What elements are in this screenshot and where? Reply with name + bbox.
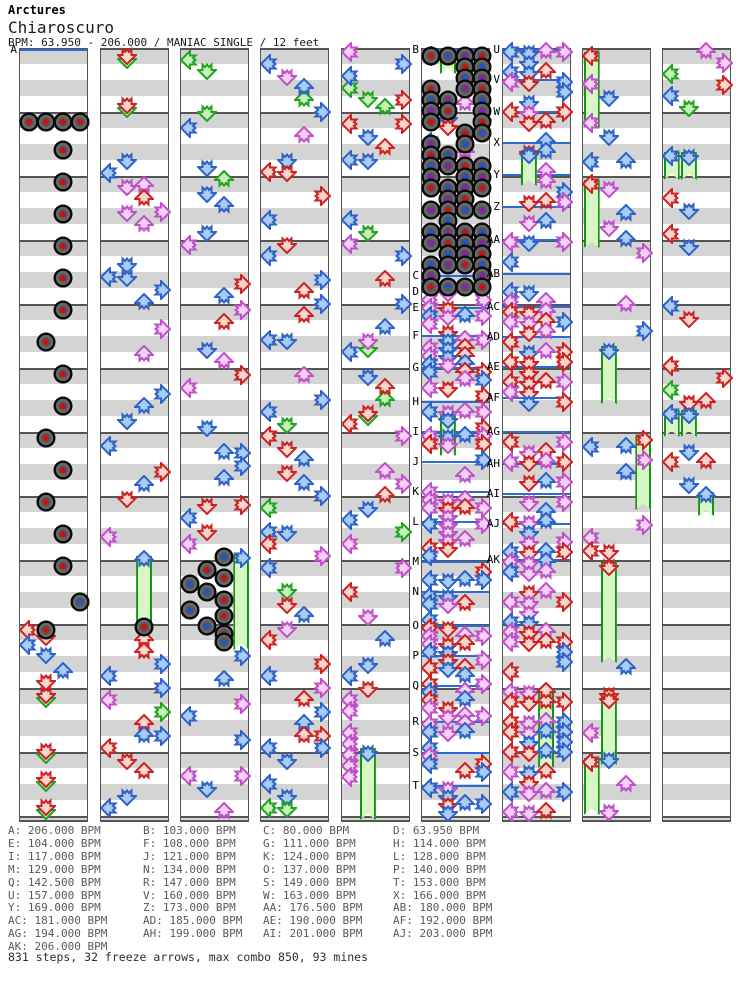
bpm-marker-label: B [403,44,419,56]
chart-column-2 [100,48,169,822]
note-arrow-right [151,202,171,222]
bpm-marker-label: AF [484,392,500,404]
bpm-entry-Y: Y: 169.000 BPM [8,902,101,914]
note-arrow-down [358,606,378,626]
bpm-marker-label: K [403,486,419,498]
bpm-entry-AC: AC: 181.000 BPM [8,915,107,927]
note-arrow-up [616,204,636,224]
note-arrow-down [679,308,699,328]
note-arrow-left [180,235,200,255]
bpm-marker-label: F [403,330,419,342]
mine-note [53,364,73,384]
mine-note [472,277,492,297]
bpm-marker-label: AB [484,268,500,280]
note-arrow-left [180,378,200,398]
note-arrow-up [375,630,395,650]
measure-line [663,816,730,818]
note-arrow-up [616,658,636,678]
note-arrow-left [341,534,361,554]
note-arrow-down [36,644,56,664]
note-arrow-up [214,802,234,822]
note-arrow-right [311,390,331,410]
bpm-marker-label: AJ [484,518,500,530]
chart-column-6 [421,48,490,822]
note-arrow-right [151,319,171,339]
note-arrow-down [599,126,619,146]
mine-note [214,568,234,588]
bpm-entry-D: D: 63.950 BPM [393,825,479,837]
note-arrow-up [294,306,314,326]
bpm-entry-I: I: 117.000 BPM [8,851,101,863]
bpm-marker-label: E [403,302,419,314]
note-arrow-up [375,270,395,290]
note-arrow-up [536,142,556,162]
mine-note [36,492,56,512]
note-arrow-right [151,654,171,674]
measure-line [663,688,730,690]
bpm-marker-label: Y [484,169,500,181]
mine-note [53,524,73,544]
bpm-marker-label: S [403,747,419,759]
note-arrow-left [100,690,120,710]
note-arrow-right [472,762,492,782]
bpm-marker-label: AE [484,361,500,373]
mine-note [472,178,492,198]
note-arrow-right [553,432,573,452]
note-arrow-down [36,671,56,691]
note-arrow-down [117,488,137,508]
measure-line [101,240,168,242]
note-arrow-down [599,689,619,709]
bpm-marker-label: D [403,286,419,298]
note-arrow-left [100,527,120,547]
note-arrow-right [151,280,171,300]
bpm-entry-Z: Z: 173.000 BPM [143,902,236,914]
note-arrow-down [197,778,217,798]
note-arrow-left [662,64,682,84]
note-arrow-down [679,236,699,256]
note-arrow-up [536,372,556,392]
note-arrow-down [679,146,699,166]
note-arrow-down [599,801,619,821]
note-arrow-up [455,722,475,742]
note-arrow-down [277,162,297,182]
note-arrow-left [341,582,361,602]
bpm-marker-label: W [484,106,500,118]
note-arrow-down [438,434,458,454]
note-arrow-right [553,392,573,412]
note-arrow-left [421,546,441,566]
note-arrow-right [633,243,653,263]
bpm-marker-label: AH [484,458,500,470]
bpm-entry-AF: AF: 192.000 BPM [393,915,492,927]
freeze-body [601,562,617,663]
note-arrow-up [536,562,556,582]
bpm-entry-AH: AH: 199.000 BPM [143,928,242,940]
note-arrow-up [536,742,556,762]
note-arrow-left [341,701,361,721]
note-arrow-down [117,267,137,287]
note-arrow-right [553,782,573,802]
mine-note [53,172,73,192]
note-arrow-down [519,562,539,582]
bpm-entry-M: M: 129.000 BPM [8,864,101,876]
note-arrow-down [679,200,699,220]
bpm-marker-label: P [403,650,419,662]
note-arrow-left [260,558,280,578]
note-arrow-up [616,463,636,483]
note-arrow-right [311,270,331,290]
note-arrow-left [260,666,280,686]
note-arrow-up [294,366,314,386]
bpm-marker-label: AC [484,301,500,313]
note-arrow-right [151,726,171,746]
note-arrow-up [455,466,475,486]
note-arrow-right [231,456,251,476]
measure-line [261,48,328,50]
note-arrow-up [294,126,314,146]
note-arrow-left [260,630,280,650]
chart-column-9 [662,48,731,822]
note-arrow-left [582,752,602,772]
note-arrow-down [117,94,137,114]
bpm-entry-AB: AB: 180.000 BPM [393,902,492,914]
note-chart: ABCDEFGHIJKLMNOPQRSTUVWXYZAAABACADAEAFAG… [0,0,752,984]
chart-column-4 [260,48,329,822]
note-arrow-up [536,212,556,232]
note-arrow-right [633,321,653,341]
note-arrow-up [134,215,154,235]
bpm-marker-label: AI [484,488,500,500]
note-arrow-up [134,397,154,417]
bpm-entry-R: R: 147.000 BPM [143,877,236,889]
note-arrow-down [599,556,619,576]
mine-note [53,140,73,160]
note-arrow-left [662,452,682,472]
note-arrow-up [294,78,314,98]
note-arrow-right [713,75,733,95]
note-arrow-down [438,802,458,822]
note-arrow-left [260,330,280,350]
note-arrow-right [311,654,331,674]
freeze-body [233,554,249,650]
note-arrow-right [553,192,573,212]
mine-note [36,620,56,640]
bpm-marker-label: O [403,620,419,632]
note-arrow-right [311,294,331,314]
note-arrow-up [536,192,556,212]
note-arrow-right [553,352,573,372]
mine-note [36,332,56,352]
mine-note [70,112,90,132]
note-arrow-down [358,742,378,762]
note-arrow-down [36,740,56,760]
note-arrow-right [553,82,573,102]
note-arrow-up [214,170,234,190]
note-arrow-right [633,450,653,470]
bpm-entry-O: O: 137.000 BPM [263,864,356,876]
note-arrow-up [696,452,716,472]
bpm-marker-label: Z [484,201,500,213]
note-arrow-left [421,378,441,398]
note-arrow-down [36,768,56,788]
mine-note [421,112,441,132]
note-arrow-up [536,682,556,702]
note-arrow-left [341,42,361,62]
note-arrow-right [553,312,573,332]
note-arrow-right [472,570,492,590]
note-arrow-left [260,498,280,518]
mine-note [70,592,90,612]
bpm-marker-label: M [403,556,419,568]
note-arrow-down [277,798,297,818]
note-arrow-left [582,174,602,194]
bpm-marker-label: T [403,780,419,792]
bpm-entry-V: V: 160.000 BPM [143,890,236,902]
note-arrow-right [553,372,573,392]
note-arrow-right [151,702,171,722]
mine-note [53,204,73,224]
bpm-entry-N: N: 134.000 BPM [143,864,236,876]
bpm-marker-label: L [403,516,419,528]
note-arrow-right [151,384,171,404]
note-arrow-right [553,102,573,122]
bpm-entry-AE: AE: 190.000 BPM [263,915,362,927]
bpm-entry-AA: AA: 176.500 BPM [263,902,362,914]
bpm-entry-C: C: 80.000 BPM [263,825,349,837]
note-arrow-right [633,515,653,535]
note-arrow-right [472,674,492,694]
bpm-entry-AJ: AJ: 203.000 BPM [393,928,492,940]
bpm-entry-W: W: 163.000 BPM [263,890,356,902]
note-arrow-left [180,534,200,554]
note-arrow-down [36,796,56,816]
measure-line [101,432,168,434]
note-arrow-left [260,246,280,266]
note-arrow-right [231,300,251,320]
bpm-entry-H: H: 114.000 BPM [393,838,486,850]
bpm-marker-label: N [403,586,419,598]
mine-note [53,300,73,320]
note-arrow-right [311,486,331,506]
measure-line [663,752,730,754]
bpm-marker-label: AK [484,554,500,566]
note-arrow-up [455,530,475,550]
note-arrow-right [231,548,251,568]
bpm-marker-label: C [403,270,419,282]
note-arrow-right [553,692,573,712]
note-arrow-up [375,378,395,398]
note-arrow-right [392,90,412,110]
note-arrow-right [151,462,171,482]
bpm-entry-K: K: 124.000 BPM [263,851,356,863]
note-arrow-left [100,436,120,456]
note-arrow-right [311,678,331,698]
bpm-entry-B: B: 103.000 BPM [143,825,236,837]
note-arrow-up [134,726,154,746]
measure-line [342,176,409,178]
note-arrow-left [502,742,522,762]
note-arrow-down [438,409,458,429]
bpm-entry-G: G: 111.000 BPM [263,838,356,850]
note-arrow-down [679,404,699,424]
bpm-marker-label: AA [484,234,500,246]
bpm-marker-label: A [1,44,17,56]
note-arrow-right [311,702,331,722]
measure-line [101,368,168,370]
note-arrow-right [311,738,331,758]
bpm-entry-X: X: 166.000 BPM [393,890,486,902]
bpm-change-line [20,49,87,51]
step-chart-page: Arctures Chiaroscuro BPM: 63.950 - 206.0… [0,0,752,984]
note-arrow-down [519,72,539,92]
note-arrow-up [616,295,636,315]
note-arrow-up [536,802,556,822]
note-arrow-right [231,766,251,786]
note-arrow-up [375,486,395,506]
bpm-entry-AG: AG: 194.000 BPM [8,928,107,940]
note-arrow-right [311,102,331,122]
chart-column-3 [180,48,249,822]
bpm-entry-S: S: 149.000 BPM [263,877,356,889]
mine-note [455,134,475,154]
note-arrow-right [553,232,573,252]
note-arrow-down [117,45,137,65]
note-arrow-right [311,546,331,566]
note-arrow-right [231,694,251,714]
note-arrow-left [502,252,522,272]
note-arrow-up [696,392,716,412]
note-arrow-right [633,430,653,450]
bpm-marker-label: J [403,456,419,468]
note-arrow-right [472,794,492,814]
mine-note [53,460,73,480]
bpm-marker-label: G [403,362,419,374]
bpm-entry-J: J: 121.000 BPM [143,851,236,863]
note-arrow-right [553,742,573,762]
note-arrow-right [231,365,251,385]
note-arrow-right [231,646,251,666]
bpm-change-line [503,273,570,275]
note-arrow-right [392,246,412,266]
note-arrow-up [214,196,234,216]
note-arrow-up [134,345,154,365]
bpm-entry-F: F: 108.000 BPM [143,838,236,850]
note-arrow-up [536,322,556,342]
note-arrow-left [341,510,361,530]
note-arrow-right [553,652,573,672]
note-arrow-left [341,150,361,170]
bpm-marker-label: U [484,44,500,56]
note-arrow-left [421,754,441,774]
note-arrow-left [341,234,361,254]
mine-note [53,556,73,576]
note-arrow-left [100,798,120,818]
mine-note [134,617,154,637]
note-arrow-up [455,794,475,814]
note-arrow-up [696,486,716,506]
chart-column-7 [502,48,571,822]
note-arrow-right [311,186,331,206]
note-arrow-left [662,356,682,376]
bpm-entry-L: L: 128.000 BPM [393,851,486,863]
note-arrow-up [375,318,395,338]
mine-note [53,268,73,288]
note-arrow-left [582,46,602,66]
note-arrow-down [197,417,217,437]
note-arrow-right [231,495,251,515]
chart-column-1 [19,48,88,822]
note-arrow-left [100,666,120,686]
mine-note [214,632,234,652]
note-arrow-up [294,606,314,626]
note-arrow-down [599,87,619,107]
note-arrow-left [502,232,522,252]
bpm-marker-label: AD [484,331,500,343]
measure-line [663,560,730,562]
bpm-marker-label: H [403,396,419,408]
note-arrow-up [455,594,475,614]
note-arrow-right [472,706,492,726]
measure-line [181,752,248,754]
note-arrow-left [260,534,280,554]
note-arrow-left [341,66,361,86]
note-arrow-right [392,114,412,134]
note-arrow-up [536,762,556,782]
note-arrow-left [582,152,602,172]
note-arrow-up [536,112,556,132]
note-arrow-up [536,452,556,472]
bpm-marker-label: AG [484,426,500,438]
note-arrow-right [553,472,573,492]
note-arrow-up [214,469,234,489]
bpm-entry-P: P: 140.000 BPM [393,864,486,876]
note-arrow-right [553,492,573,512]
bpm-marker-label: X [484,137,500,149]
note-arrow-right [231,730,251,750]
note-arrow-right [392,54,412,74]
note-arrow-down [277,750,297,770]
note-arrow-down [117,410,137,430]
bpm-entry-AD: AD: 185.000 BPM [143,915,242,927]
bpm-entry-Q: Q: 142.500 BPM [8,877,101,889]
note-arrow-right [713,53,733,73]
note-arrow-down [519,144,539,164]
bpm-entry-A: A: 206.000 BPM [8,825,101,837]
note-arrow-up [616,775,636,795]
note-arrow-right [151,678,171,698]
note-arrow-left [502,632,522,652]
note-arrow-left [341,414,361,434]
chart-column-5 [341,48,410,822]
note-arrow-down [519,452,539,472]
chart-summary: 831 steps, 32 freeze arrows, max combo 8… [8,950,368,964]
note-arrow-up [134,550,154,570]
mine-note [438,101,458,121]
note-arrow-up [134,293,154,313]
bpm-marker-label: Q [403,680,419,692]
note-arrow-right [553,452,573,472]
note-arrow-right [553,592,573,612]
note-arrow-left [582,723,602,743]
bpm-marker-label: V [484,74,500,86]
note-arrow-up [214,670,234,690]
note-arrow-right [553,542,573,562]
note-arrow-right [472,626,492,646]
bpm-entry-T: T: 153.000 BPM [393,877,486,889]
note-arrow-left [341,342,361,362]
note-arrow-left [582,437,602,457]
